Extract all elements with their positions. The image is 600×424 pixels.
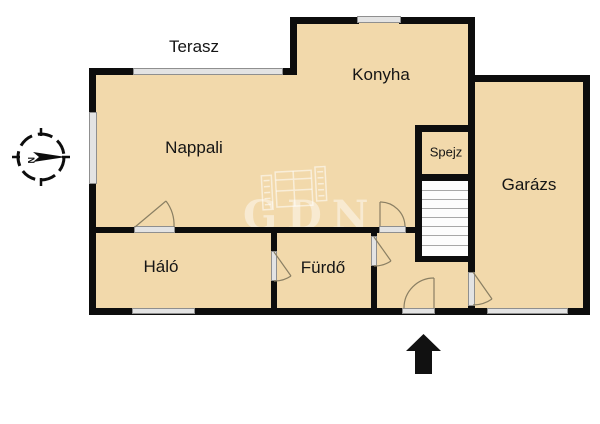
room-label-terasz: Terasz: [169, 37, 219, 57]
door-swing-garage: [473, 272, 492, 305]
room-label-halo: Háló: [144, 257, 179, 277]
door-swing-bathroom: [374, 237, 391, 266]
watermark-film-icon: [261, 167, 327, 210]
door-swing-bedroom-bathroom: [274, 252, 291, 281]
room-label-konyha: Konyha: [352, 65, 410, 85]
compass-north-letter: N: [26, 157, 36, 164]
room-label-furdo: Fürdő: [301, 258, 345, 278]
compass-icon: N: [12, 128, 70, 186]
room-label-spejz: Spejz: [430, 145, 463, 160]
entrance-arrow-icon: [406, 334, 441, 374]
door-swing-hall-kitchen: [380, 202, 405, 226]
floorplan-page: { "plan": { "type": "floorplan", "rooms"…: [0, 0, 600, 424]
door-swing-entrance: [404, 278, 434, 308]
room-label-nappali: Nappali: [165, 138, 223, 158]
door-swing-bedroom: [135, 201, 174, 227]
room-label-garazs: Garázs: [502, 175, 557, 195]
